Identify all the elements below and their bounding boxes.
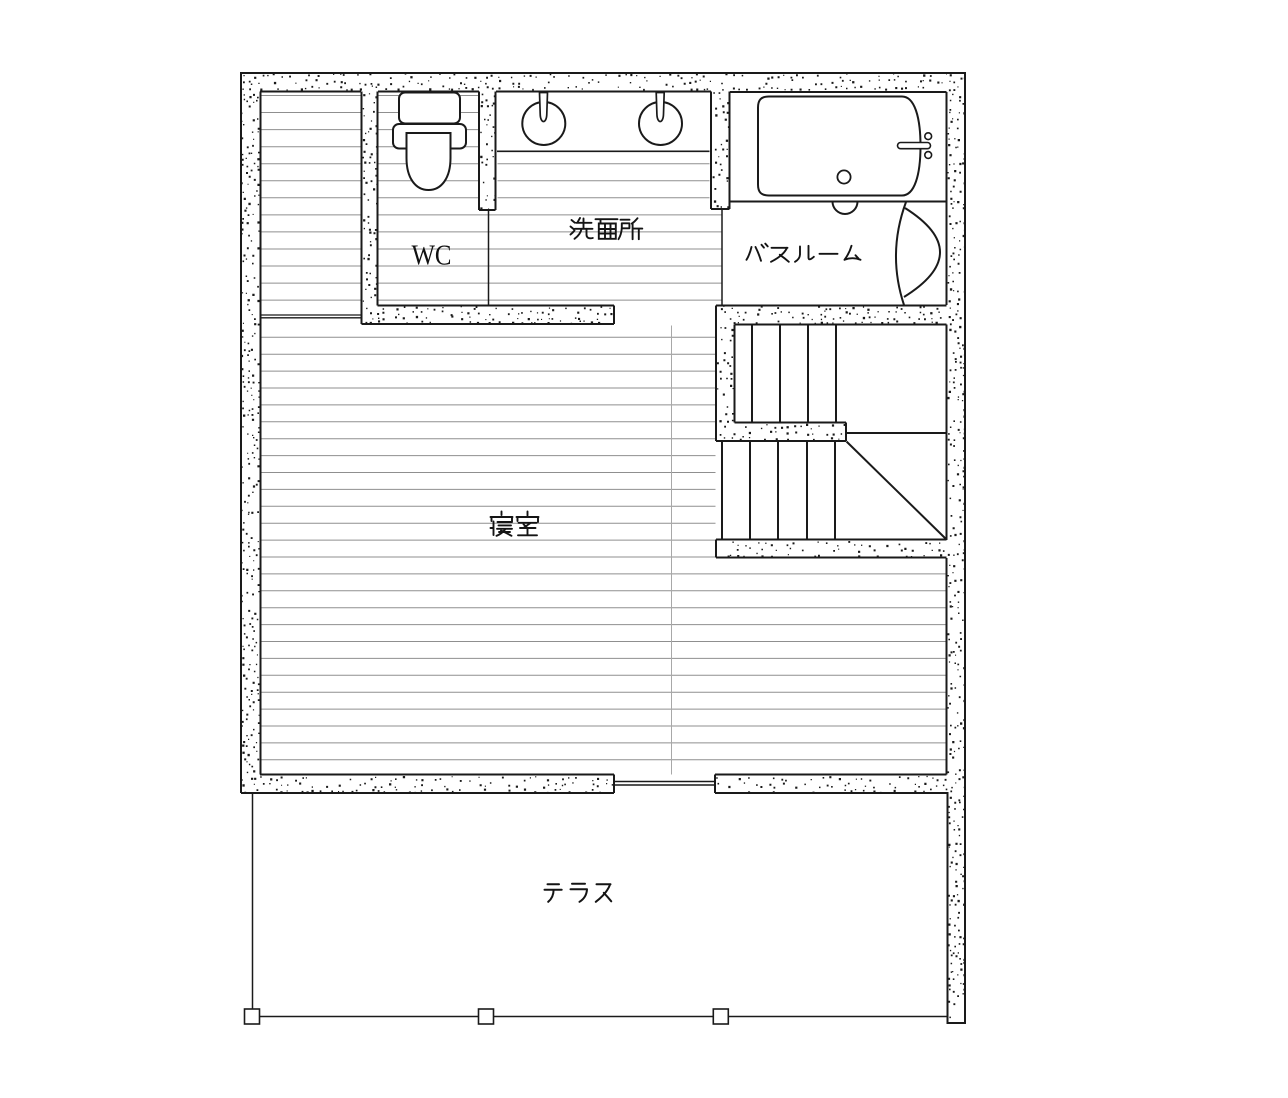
svg-text:WC: WC	[412, 240, 452, 272]
